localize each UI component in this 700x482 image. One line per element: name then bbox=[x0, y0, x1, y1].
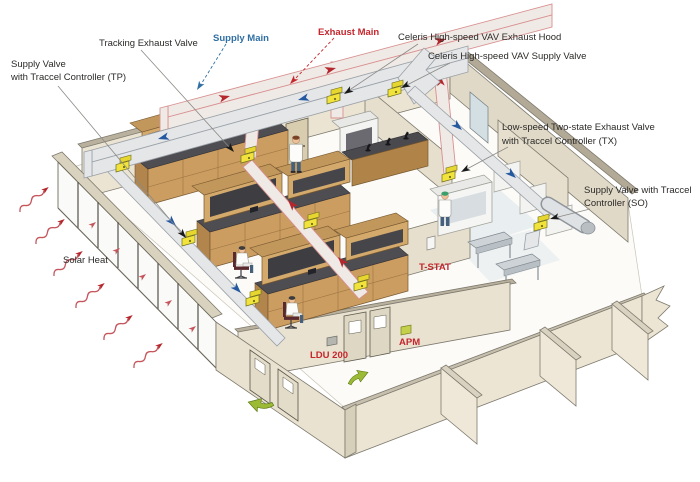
label-apm: APM bbox=[399, 337, 420, 348]
label-tx-valve-line2: with Traccel Controller (TX) bbox=[501, 136, 617, 147]
ldu-device bbox=[327, 336, 337, 346]
label-solar-heat: Solar Heat bbox=[63, 255, 108, 266]
label-ldu-200: LDU 200 bbox=[310, 350, 348, 361]
label-supply-valve-tp-line1: Supply Valve bbox=[11, 59, 66, 70]
t-stat-device bbox=[427, 236, 435, 250]
label-celeris-exhaust-hood: Celeris High-speed VAV Exhaust Hood bbox=[398, 32, 561, 43]
label-tx-valve-line1: Low-speed Two-state Exhaust Valve bbox=[502, 122, 655, 133]
apm-device bbox=[401, 325, 411, 335]
label-celeris-supply-valve: Celeris High-speed VAV Supply Valve bbox=[428, 51, 586, 62]
label-supply-valve-tp-line2: with Traccel Controller (TP) bbox=[10, 72, 126, 83]
label-exhaust-main: Exhaust Main bbox=[318, 27, 379, 38]
hvac-lab-diagram-canvas: Supply Valve with Traccel Controller (TP… bbox=[0, 0, 700, 482]
label-supply-main: Supply Main bbox=[213, 33, 269, 44]
corridor-door bbox=[370, 307, 390, 357]
label-t-stat: T-STAT bbox=[419, 262, 451, 273]
label-so-valve-line1: Supply Valve with Traccel bbox=[584, 185, 692, 196]
hvac-lab-isometric-diagram: Supply Valve with Traccel Controller (TP… bbox=[0, 0, 700, 482]
label-tracking-exhaust-valve: Tracking Exhaust Valve bbox=[99, 38, 198, 49]
label-so-valve-line2: Controller (SO) bbox=[584, 198, 648, 209]
pipe-end-cap bbox=[581, 222, 595, 234]
